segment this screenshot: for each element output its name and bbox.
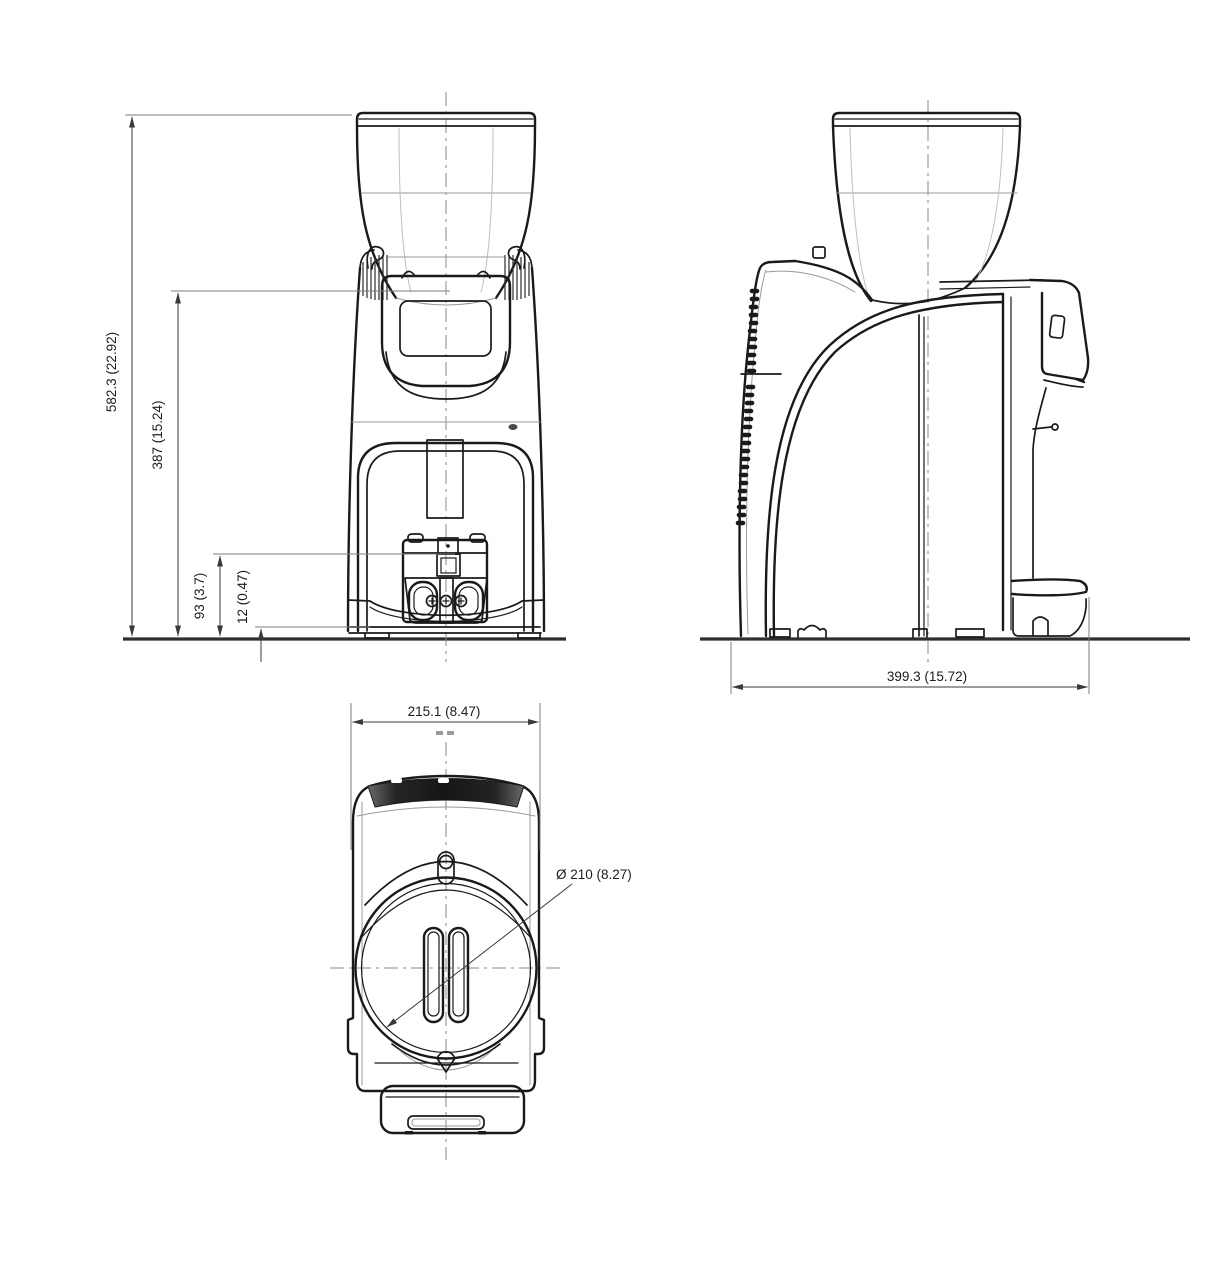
dim-height-to-display-label: 387 (15.24) — [150, 400, 165, 469]
top-hopper-circle — [356, 852, 537, 1059]
side-display-head — [1030, 280, 1088, 578]
dim-tray-lip-label: 12 (0.47) — [235, 570, 250, 624]
dimension-annotations: 582.3 (22.92) 387 (15.24) 93 (3.7) 12 (0… — [104, 115, 1089, 1027]
top-front-block — [381, 1086, 524, 1135]
front-dispenser — [403, 534, 487, 623]
side-column — [919, 294, 1011, 636]
dim-spout-clearance-label: 93 (3.7) — [192, 573, 207, 620]
dim-hopper-diameter-label: Ø 210 (8.27) — [556, 867, 632, 882]
center-tick-right — [447, 731, 454, 735]
power-indicator-dot — [509, 424, 518, 430]
dim-overall-depth: 399.3 (15.72) — [731, 597, 1089, 694]
dim-overall-width-label: 215.1 (8.47) — [408, 704, 481, 719]
center-tick-left — [436, 731, 443, 735]
dim-overall-depth-label: 399.3 (15.72) — [887, 669, 967, 684]
top-switch — [813, 247, 825, 258]
side-button — [1049, 315, 1065, 338]
top-rear-grille — [357, 778, 535, 816]
dim-overall-height: 582.3 (22.92) — [104, 115, 352, 636]
side-arch — [766, 294, 1003, 636]
side-hopper — [833, 113, 1020, 301]
dim-tray-lip: 12 (0.47) — [235, 570, 370, 662]
technical-drawing-canvas: 582.3 (22.92) 387 (15.24) 93 (3.7) 12 (0… — [0, 0, 1209, 1280]
dim-overall-height-label: 582.3 (22.92) — [104, 332, 119, 412]
side-view — [738, 100, 1088, 662]
grille-slot-left — [391, 778, 402, 783]
side-feet — [770, 626, 984, 638]
grille-slot-right — [438, 778, 449, 783]
side-tray — [1012, 580, 1087, 637]
drawing-sheet: 582.3 (22.92) 387 (15.24) 93 (3.7) 12 (0… — [0, 0, 1209, 1280]
top-view — [330, 731, 562, 1160]
front-view — [348, 92, 544, 662]
